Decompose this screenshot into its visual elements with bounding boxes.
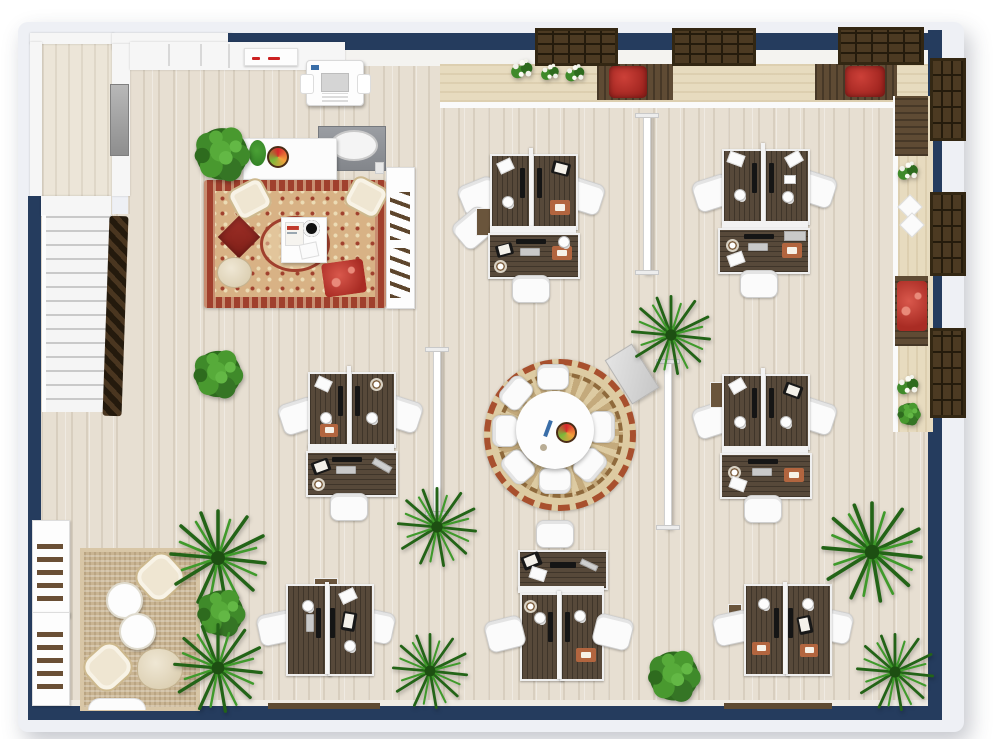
kitchen-sink [330, 130, 378, 161]
desk-divider [761, 143, 765, 223]
meeting-chair [539, 468, 571, 494]
flower-pot [892, 150, 926, 194]
table-ball [540, 444, 547, 451]
monitor [316, 608, 321, 638]
desk-lamp [534, 612, 546, 624]
storage-rack [32, 520, 70, 618]
task-chair [536, 520, 574, 548]
monitor [769, 163, 774, 193]
keyboard [748, 243, 768, 251]
red-patterned-pillow [321, 258, 367, 298]
coffee-mug [312, 478, 325, 491]
workstation-pod [286, 366, 410, 516]
plant-palm [170, 622, 266, 714]
monitor [769, 388, 774, 418]
desk-lamp [758, 598, 770, 610]
keyboard [520, 248, 540, 256]
copier-tray-left [300, 74, 314, 94]
desk-lamp [366, 412, 378, 424]
desk-lamp [502, 196, 514, 208]
plant-palm [820, 500, 924, 604]
desk-divider [783, 582, 787, 674]
round-side-table [119, 613, 156, 650]
desk-divider [761, 368, 765, 448]
lounge-shelf-unit [386, 167, 415, 309]
monitor [516, 239, 546, 244]
desk-divider [347, 366, 351, 446]
monitor [537, 168, 542, 198]
desk-divider [325, 582, 329, 674]
stair-landing-wall [41, 196, 111, 216]
window-top [672, 28, 756, 66]
window-top [838, 27, 924, 65]
screen-foot [635, 270, 659, 275]
plant-bush [184, 116, 260, 192]
copier-tray-right [357, 74, 371, 94]
hallway-left-wall [30, 42, 42, 216]
magazine [285, 222, 304, 246]
desk-shelf-band [518, 586, 604, 593]
screen-foot [425, 347, 449, 352]
door-seam [200, 44, 202, 66]
storage-rack [32, 612, 70, 706]
beige-pouf [217, 257, 252, 288]
rack-items [37, 541, 63, 601]
task-chair [740, 270, 778, 298]
keyboard [336, 466, 356, 474]
black-tray [303, 220, 320, 237]
task-chair [330, 493, 368, 521]
plant-palm [630, 294, 712, 376]
desk-pad [552, 246, 572, 260]
desk-shelf-band [722, 221, 808, 228]
monitor [752, 388, 757, 418]
coffee-mug [524, 600, 537, 613]
copier-vents [322, 93, 348, 102]
red-marker [252, 57, 260, 60]
monitor [774, 608, 779, 638]
copier-glass [321, 73, 349, 92]
flower-pot [893, 398, 925, 430]
workstation-pod [496, 520, 608, 678]
workstation-pod [266, 582, 382, 678]
meeting-chair [492, 415, 518, 447]
shelf-items [390, 192, 410, 240]
plant-palm [852, 632, 938, 712]
divider-screen [664, 360, 672, 529]
monitor [332, 457, 362, 462]
copier-printer [306, 60, 364, 106]
desk-shelf-band [490, 226, 576, 233]
task-chair [512, 275, 550, 303]
screen-foot [635, 113, 659, 118]
corner-bench [895, 96, 928, 156]
monitor [752, 163, 757, 193]
shelf-items [390, 248, 410, 298]
low-wall-bench [268, 703, 380, 709]
keyboard [752, 468, 772, 476]
desk-pad [576, 648, 596, 662]
desk-shelf-band [722, 446, 808, 453]
divider-screen [643, 114, 651, 274]
window-right [930, 58, 966, 141]
half-round-wall-table [88, 698, 146, 710]
task-chair [744, 495, 782, 523]
monitor [330, 608, 335, 638]
desk-pad [800, 644, 818, 657]
coffee-mug [726, 239, 739, 252]
monitor [788, 608, 793, 638]
desk-pad [550, 200, 570, 215]
flower-pot [560, 58, 592, 90]
desk-divider [557, 591, 561, 679]
monitor [520, 168, 525, 198]
monitor [550, 562, 576, 568]
desk-pad [784, 468, 804, 482]
screen-foot [656, 525, 680, 530]
bench-red-pillow [897, 281, 927, 331]
laptop [784, 231, 806, 241]
desk-lamp [782, 191, 794, 203]
desk-lamp [320, 412, 332, 424]
monitor [744, 234, 774, 239]
plant-palm [390, 632, 470, 710]
desk-note [784, 175, 796, 184]
desk-lamp [734, 189, 746, 201]
desk-shelf-band [308, 444, 394, 451]
coffee-mug [494, 260, 507, 273]
workstation-pod [700, 368, 824, 518]
desk-lamp [302, 600, 314, 612]
monitor [565, 612, 570, 642]
workstation-pod [468, 148, 592, 298]
copier-display [311, 65, 319, 70]
plant-bush [184, 340, 252, 408]
monitor [338, 386, 343, 416]
round-table [516, 391, 594, 469]
rack-items [37, 631, 63, 689]
monitor [748, 459, 778, 464]
desk-pad [782, 243, 802, 258]
workstation-pod [700, 143, 824, 293]
desk-lamp [344, 640, 356, 652]
counter-leg [375, 162, 384, 174]
coffee-mug [370, 378, 383, 391]
desk-pad [752, 642, 770, 655]
floor-plan-canvas: 3D office floor plan - top-down view [0, 0, 1000, 739]
desk-return [476, 208, 491, 236]
bench-red-cushion [845, 66, 885, 97]
table-fruit-bowl [556, 422, 577, 443]
plant-palm [396, 486, 478, 568]
wall-seam [228, 44, 230, 68]
monitor [355, 386, 360, 416]
desk-divider [529, 148, 533, 228]
door-seam [168, 44, 170, 66]
monitor [548, 612, 553, 642]
bench-red-cushion [609, 66, 647, 98]
low-wall-bench [724, 703, 832, 709]
desk-lamp [780, 416, 792, 428]
desk-lamp [802, 598, 814, 610]
desk-pad [320, 424, 338, 437]
window-right [930, 328, 966, 418]
gray-wall-panel [110, 84, 129, 156]
desk-lamp [574, 610, 586, 622]
meeting-chair [537, 364, 569, 390]
plant-bush [638, 640, 710, 712]
window-right [930, 192, 966, 276]
hallway-floor [42, 42, 112, 216]
red-marker [268, 57, 280, 60]
fruit-bowl [267, 146, 289, 168]
desk-lamp [558, 236, 570, 248]
staircase [42, 215, 112, 412]
desk-lamp [734, 416, 746, 428]
hallway-top-wall [30, 33, 114, 44]
keyboard [306, 614, 314, 632]
